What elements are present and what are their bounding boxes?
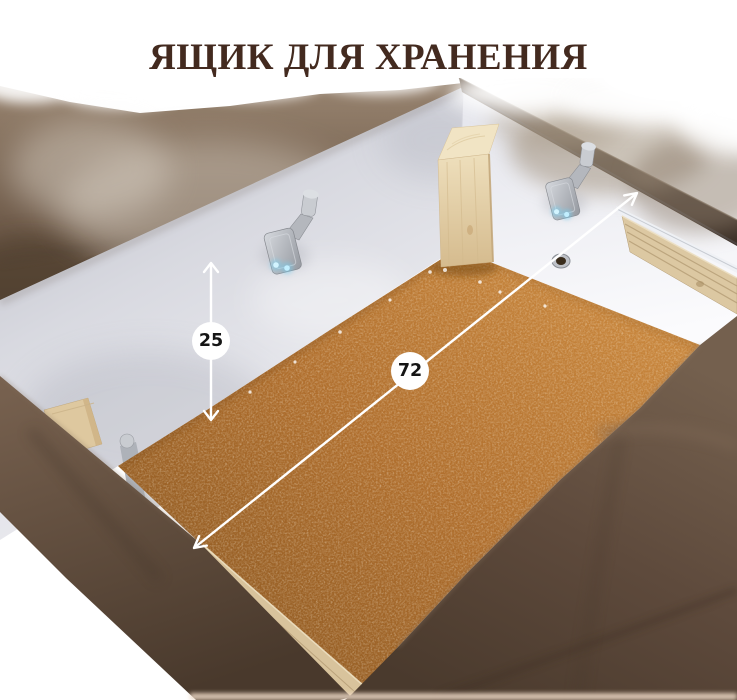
wall-grommet	[552, 254, 570, 268]
bottom-fade-strip	[190, 693, 737, 700]
height-value: 25	[199, 331, 223, 351]
length-value: 72	[398, 361, 422, 381]
storage-box-infographic: 25 72 ЯЩИК ДЛЯ ХРАНЕНИЯ	[0, 0, 737, 700]
wood-post	[438, 124, 499, 267]
page-title: ЯЩИК ДЛЯ ХРАНЕНИЯ	[0, 36, 737, 80]
product-photo: 25 72	[0, 0, 737, 700]
